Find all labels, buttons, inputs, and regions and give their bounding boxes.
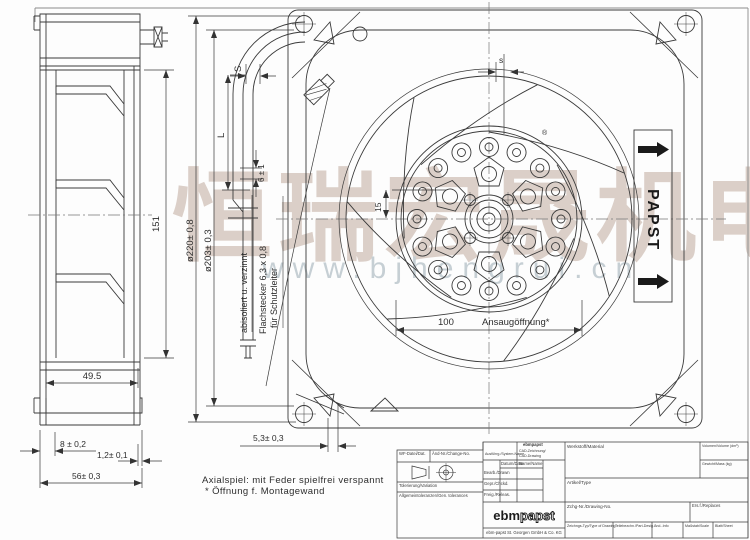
tb-change-no: Änd-Nr./Change-No. xyxy=(432,452,470,457)
tb-cad-line2: CAD-Drawing xyxy=(519,454,541,458)
dim-strip-6: 6 ± 1 xyxy=(258,164,266,182)
projection-symbol xyxy=(412,463,456,482)
tb-name-header: Name/Name xyxy=(519,462,543,467)
dim-depth-56: 56± 0,3 xyxy=(72,472,100,481)
dim-foot-5-3: 5,3± 0,3 xyxy=(253,434,284,443)
ebmpapst-logo: ebmpapst xyxy=(493,508,554,523)
dim-opening-100: 100 xyxy=(438,318,454,328)
tb-row-released: Freig./Releas. xyxy=(484,493,510,498)
tb-row-checked: Gepr./Chckd. xyxy=(484,482,508,487)
connector-label-1: Flachstecker 6,3 x 0,8 xyxy=(259,246,268,334)
tb-cad-line1: CAD-Zeichnung/ xyxy=(519,449,546,453)
logo-ebm: ebm xyxy=(493,508,520,523)
dim-opening-label: Ansaugöffnung* xyxy=(482,318,549,328)
tb-mass: Gewicht/Mass (kg) xyxy=(702,462,732,466)
logo-papst: papst xyxy=(520,508,555,523)
tb-general-tolerance: Allgemeintoleranzen/Gen. tolerances xyxy=(399,494,468,499)
dim-width-49-5: 49.5 xyxy=(83,372,102,382)
dim-cable-l: L xyxy=(217,133,227,138)
connector-label-2: für Schutzleiter xyxy=(270,268,279,328)
note-axial-play: Axialspiel: mit Feder spielfrei verspann… xyxy=(202,475,384,486)
tb-tolerance: Tolerierung/Variation xyxy=(399,484,437,489)
note-opening: * Öffnung f. Montagewand xyxy=(205,486,325,497)
dim-cable-s: S xyxy=(234,66,244,72)
tb-drawing-no: Zchg-Nr./Drawing-No. xyxy=(567,504,611,509)
tb-cell-sheet: Blatt/Sheet xyxy=(715,524,733,528)
dim-dia-203: ø203± 0,3 xyxy=(204,229,214,272)
technical-drawing-sheet: 恒瑞宏晟机电 www.bjhengrui.cn xyxy=(0,0,750,540)
dim-dia-220: ø220± 0,8 xyxy=(186,219,196,262)
dim-gap-s: s xyxy=(499,56,503,65)
tb-cell-type: Zeichngs-Typ/Type of Drawing xyxy=(567,524,616,528)
dim-hub-offset-15: 15 xyxy=(374,203,383,212)
dim-flange-8: 8 ± 0,2 xyxy=(60,440,86,449)
tb-brand-small: ebmpapst xyxy=(523,443,543,448)
papst-brand-text: PAPST xyxy=(643,189,661,251)
tb-company: ebm-papst St. Georgen GmbH & Co. KG xyxy=(486,531,562,536)
dim-lip-1-2: 1,2± 0,1 xyxy=(97,451,128,460)
tb-replaces: Ers.f./Replaces xyxy=(692,504,720,509)
flat-connector xyxy=(304,73,336,105)
tb-material: Werkstoff/Material xyxy=(567,444,604,449)
tb-volume: Volumen/Volume (dm³) xyxy=(702,444,739,448)
tb-cell-scale: Maßstab/Scale xyxy=(685,524,709,528)
side-view xyxy=(28,14,168,425)
tb-article: Artikel/Type xyxy=(567,480,591,485)
dim-height-151: 151 xyxy=(152,216,162,232)
cable-dimensions xyxy=(222,64,276,197)
tb-cell-change: Änd.-Info xyxy=(654,524,669,528)
wire-label: abisoliert u. verzinnt xyxy=(240,253,249,333)
tb-row-drawn: Bearb./Drawn xyxy=(484,471,510,476)
tb-cell-part: Teilebezchn./Part-Desig. xyxy=(615,524,654,528)
tb-wf-file: WF-Datei/Dat. xyxy=(399,452,426,457)
registered-trademark: ® xyxy=(542,130,547,137)
